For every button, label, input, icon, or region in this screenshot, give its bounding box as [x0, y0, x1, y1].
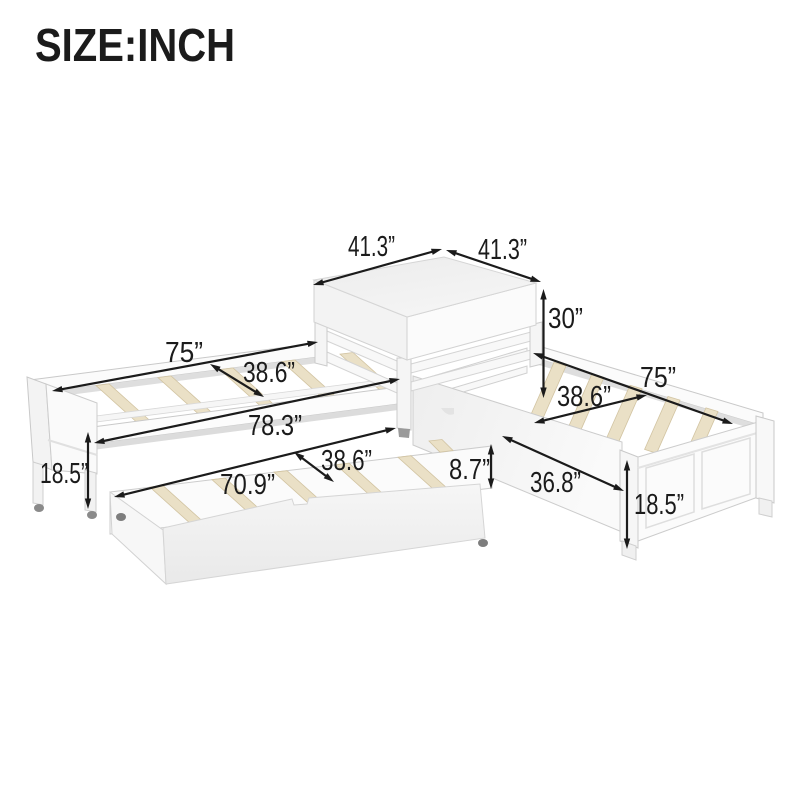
svg-text:75”: 75”	[640, 362, 676, 394]
svg-text:38.6”: 38.6”	[321, 445, 372, 477]
svg-text:SIZE:INCH: SIZE:INCH	[35, 19, 235, 71]
svg-text:38.6”: 38.6”	[243, 357, 295, 389]
svg-text:75”: 75”	[165, 337, 203, 369]
svg-text:70.9”: 70.9”	[220, 469, 275, 501]
svg-text:78.3”: 78.3”	[248, 410, 302, 442]
svg-text:8.7”: 8.7”	[449, 454, 490, 486]
svg-text:18.5”: 18.5”	[634, 489, 684, 521]
svg-text:38.6”: 38.6”	[557, 381, 611, 413]
svg-text:18.5”: 18.5”	[40, 458, 88, 490]
svg-text:30”: 30”	[548, 303, 583, 335]
svg-text:41.3”: 41.3”	[348, 231, 395, 263]
svg-text:41.3”: 41.3”	[478, 234, 527, 266]
svg-text:36.8”: 36.8”	[530, 467, 581, 499]
